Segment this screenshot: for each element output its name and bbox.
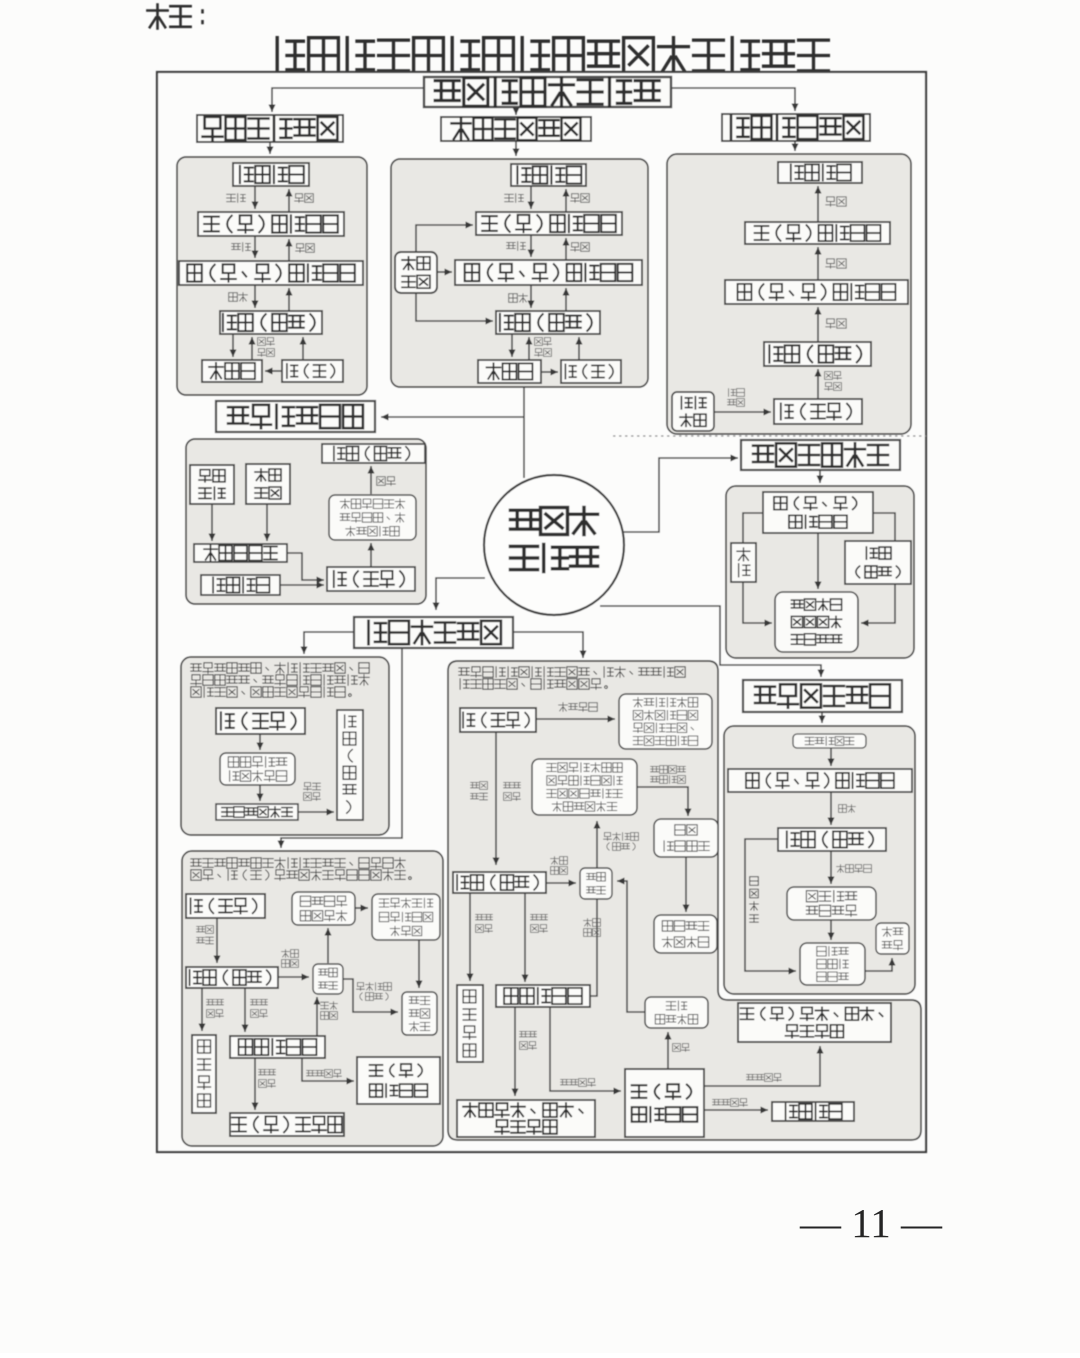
svg-text:— 11 —: — 11 — [799, 1200, 943, 1246]
